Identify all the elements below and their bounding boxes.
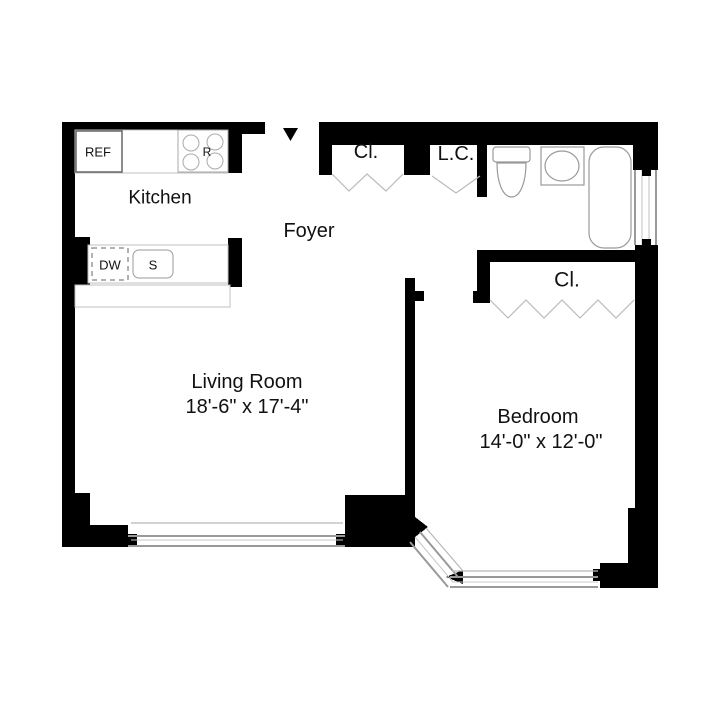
- bedroom-window: [450, 571, 598, 587]
- entry-arrow-icon: [283, 128, 298, 141]
- foyer-closet-door: [332, 174, 403, 191]
- kitchen-sink-label: S: [149, 259, 158, 272]
- wall-left-bottom-block: [62, 525, 128, 547]
- wall-bottom-center-block: [345, 495, 428, 547]
- bathroom-window-tick-bottom: [642, 239, 651, 245]
- bathtub-icon: [589, 147, 631, 248]
- floor-plan-drawing: [0, 0, 720, 720]
- bathroom-sink-bowl-icon: [545, 151, 579, 181]
- wall-bottom-right-block: [600, 563, 658, 588]
- foyer-label: Foyer: [283, 221, 334, 241]
- wall-kitchen-left-block: [62, 237, 90, 287]
- living-room-dimensions: 18'-6" x 17'-4": [185, 397, 308, 417]
- bathroom-window: [633, 170, 658, 245]
- living-room-label: Living Room: [191, 372, 302, 392]
- wall-between-closets: [404, 145, 430, 175]
- bedroom-dimensions: 14'-0" x 12'-0": [479, 432, 602, 452]
- wall-left-step: [62, 493, 90, 527]
- wall-divider-tick: [415, 291, 424, 301]
- wall-living-bedroom-divider: [405, 278, 415, 495]
- wall-right-mid: [635, 245, 658, 508]
- kitchen-peninsula-counter: [75, 285, 230, 307]
- bathroom-window-tick-top: [642, 170, 651, 176]
- linen-closet-label: L.C.: [438, 144, 475, 164]
- wall-kitchen-entry-stub: [228, 122, 242, 173]
- range-label: R: [203, 146, 212, 158]
- wall-linen-closet-right: [477, 145, 487, 197]
- floor-plan: Kitchen Foyer Living Room 18'-6" x 17'-4…: [0, 0, 720, 720]
- wall-right-lower: [628, 508, 658, 563]
- bathroom-fixtures: [493, 147, 631, 248]
- bedroom-closet-label: Cl.: [554, 270, 580, 291]
- living-room-window: [128, 523, 345, 546]
- toilet-tank-icon: [493, 147, 530, 162]
- wall-right-top: [633, 145, 658, 170]
- bedroom-label: Bedroom: [497, 407, 578, 427]
- wall-bedroom-closet-left-foot: [473, 291, 490, 303]
- refrigerator-label: REF: [85, 146, 111, 159]
- foyer-closet-label: Cl.: [354, 142, 378, 162]
- wall-foyer-closet-left-stub: [319, 145, 332, 175]
- wall-kitchen-lower-stub: [228, 238, 242, 287]
- dishwasher-label: DW: [99, 259, 121, 272]
- bedroom-closet-door: [490, 300, 634, 318]
- wall-bedroom-closet-top: [480, 250, 635, 262]
- toilet-bowl-icon: [497, 163, 526, 197]
- linen-closet-door: [432, 176, 480, 193]
- wall-left: [62, 122, 75, 493]
- kitchen-label: Kitchen: [128, 189, 191, 208]
